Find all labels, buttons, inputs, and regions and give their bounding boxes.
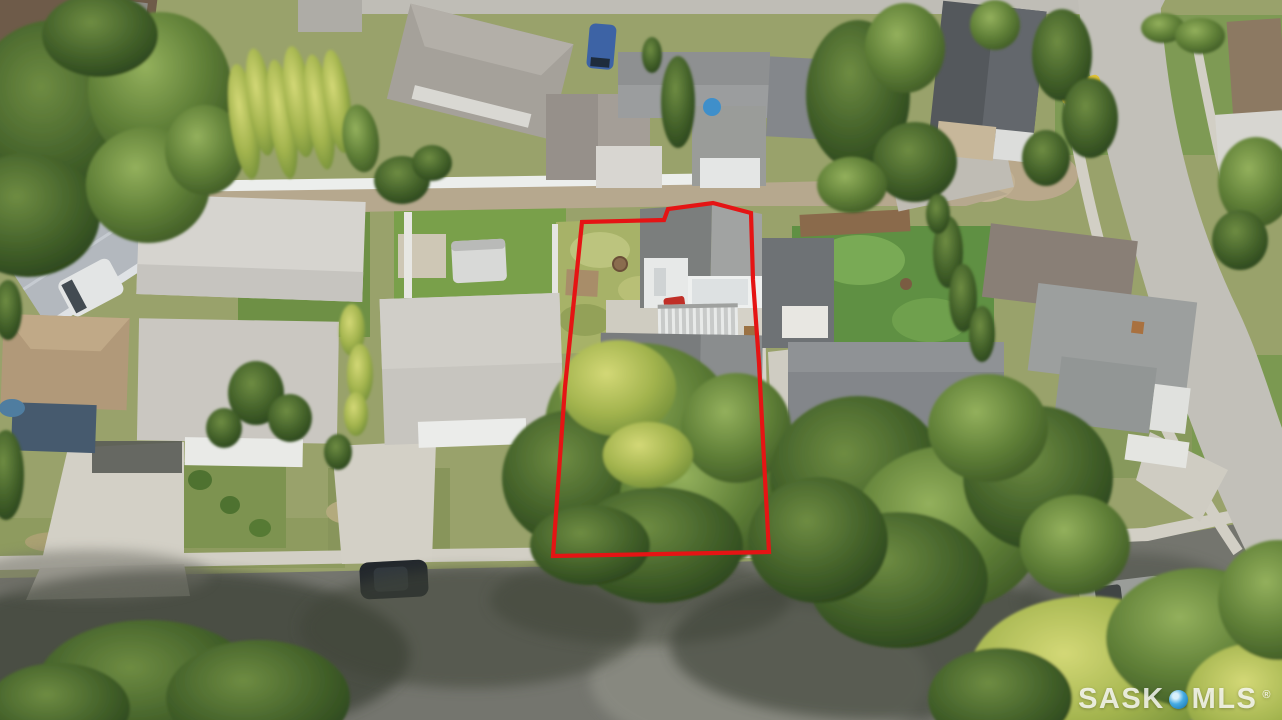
spruce-tree [642,37,662,73]
tree [530,505,650,585]
shrub [324,434,352,470]
tree [865,3,945,93]
tree [560,340,676,436]
shrub [249,519,271,537]
tree [928,374,1048,482]
lawn-patch [559,304,611,336]
shrub [188,470,212,490]
garage-roof [298,0,362,32]
roof-slope [380,293,562,369]
tree [268,394,312,442]
wall [1149,384,1190,434]
asphalt-pad [92,441,182,473]
tree [1022,130,1070,186]
tree [1062,78,1118,158]
fire-pit [900,278,912,290]
watermark: SASK MLS ® [1078,683,1272,716]
roof [1227,18,1282,118]
spruce-tree [661,56,695,148]
tree [206,408,242,448]
tree [603,422,693,488]
tree [1020,495,1130,595]
registered-trademark-symbol: ® [1262,683,1272,707]
door [654,268,666,296]
scene [0,0,1282,720]
cedar-tree [926,194,950,234]
garage-wall [700,158,760,188]
pool [703,98,721,116]
cedar-tree [344,392,368,436]
tree [1212,210,1268,270]
cedar-tree [969,306,995,362]
shrub [220,496,240,514]
garage-door [692,279,748,305]
blue-van [586,23,617,70]
awning [782,306,828,338]
tree [412,145,452,181]
tree [817,157,887,213]
mls-dot-icon [1169,690,1188,709]
white-side-fence [404,212,412,298]
wall [418,418,527,448]
gazebo [451,239,507,284]
tree [970,0,1020,50]
watermark-text-left: SASK [1078,683,1165,716]
aerial-photo: SASK MLS ® [0,0,1282,720]
van-windshield [590,57,610,68]
shrub [1175,18,1225,54]
watermark-text-right: MLS [1192,683,1258,716]
wall [185,437,303,467]
pool-toy [0,399,25,417]
right-neighbor-house [762,238,834,348]
fire-pit [613,257,627,271]
shed [596,146,662,188]
garden-shed [565,269,598,297]
chimney [1131,321,1144,334]
